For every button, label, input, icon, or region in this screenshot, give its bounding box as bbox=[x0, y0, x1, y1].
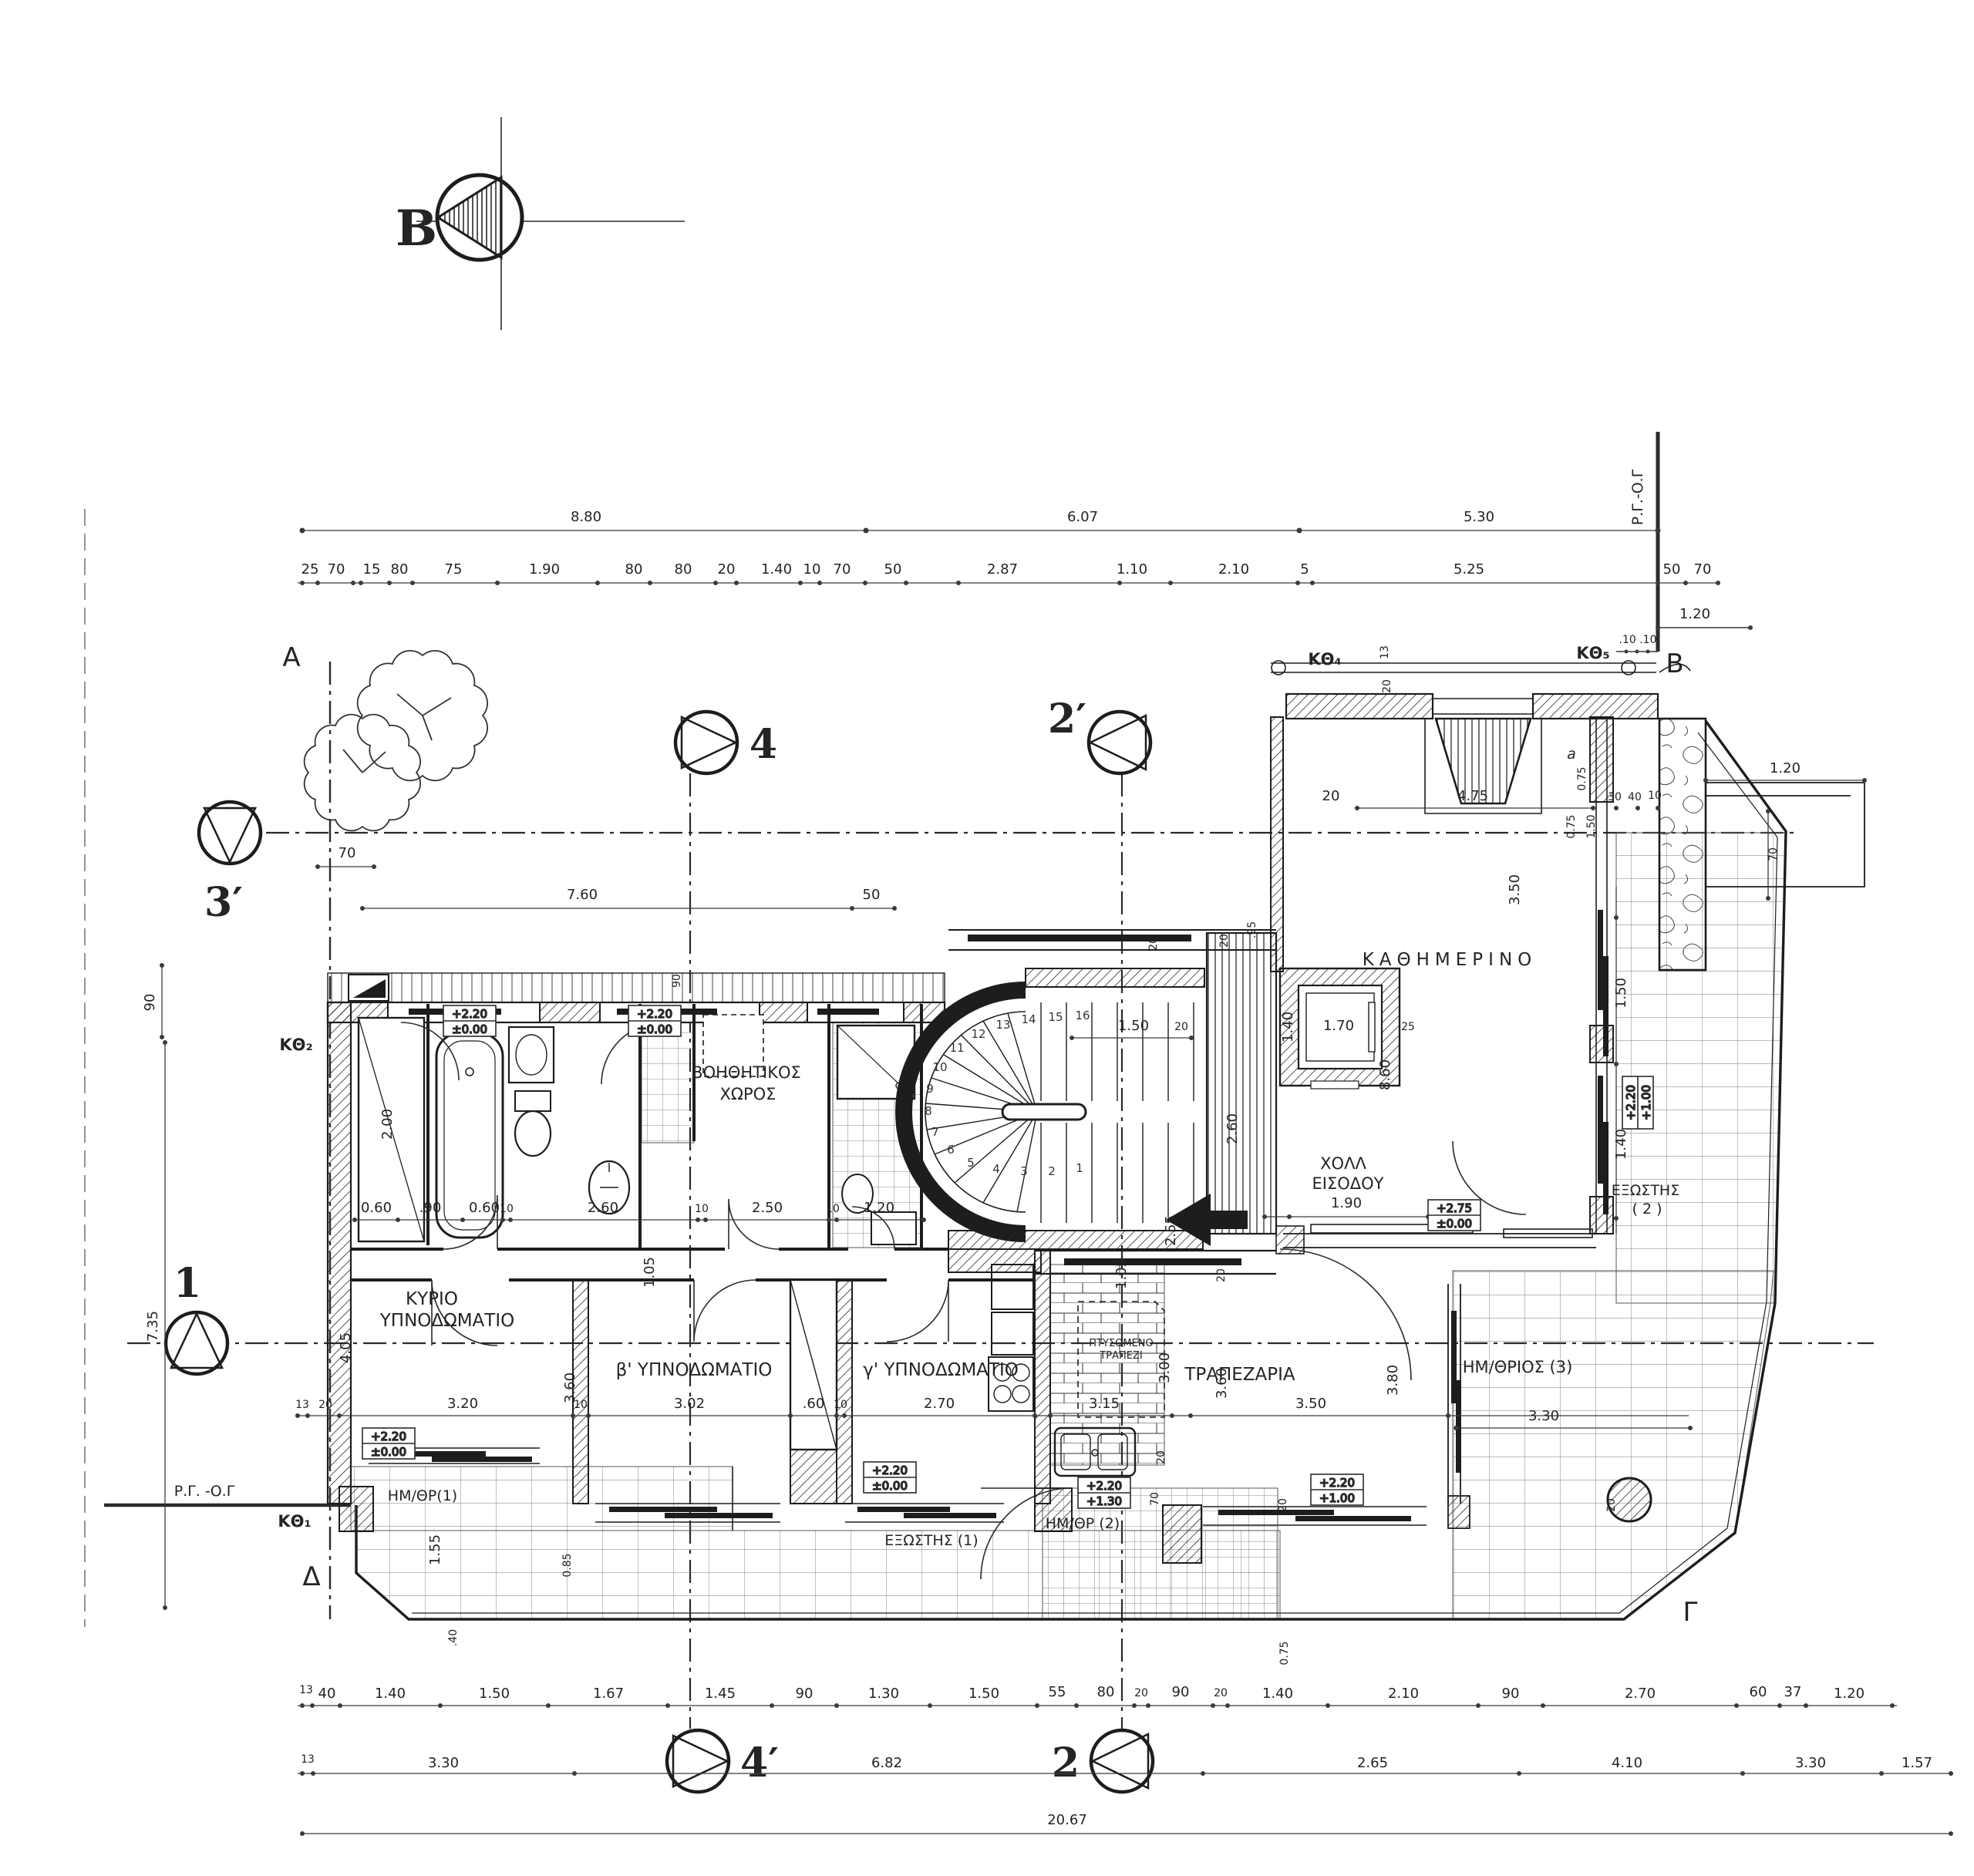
floor-plan-sheet: B 4 2′ 3′ 1 4′ 2 A B Γ Δ bbox=[0, 0, 1974, 1876]
dim-text: 55 bbox=[1049, 1684, 1066, 1700]
dim-text: 37 bbox=[1784, 1684, 1802, 1700]
window-label-kth4: ΚΘ₄ bbox=[1308, 650, 1341, 669]
section-marker-3-prime: 3′ bbox=[199, 802, 261, 926]
step-number: 4 bbox=[992, 1162, 1000, 1176]
room-label-voithitikos-line2: ΧΩΡΟΣ bbox=[720, 1085, 776, 1103]
dim-text: 5.25 bbox=[1454, 561, 1484, 578]
dim-text: 1.05 bbox=[1113, 1258, 1130, 1289]
step-number: 3 bbox=[1020, 1164, 1028, 1178]
dim-text: 1.50 bbox=[1118, 1018, 1149, 1034]
elevation-top: +2.20 bbox=[1319, 1476, 1355, 1490]
dim-text: 6.07 bbox=[1067, 509, 1098, 525]
dim-text: 10 bbox=[826, 1203, 840, 1215]
toilet-tank bbox=[515, 1091, 551, 1111]
stair-lower-flight bbox=[1041, 1123, 1194, 1223]
dim-text: 5 bbox=[1300, 561, 1309, 578]
step-number: 6 bbox=[947, 1143, 955, 1157]
elevation-top: +2.75 bbox=[1437, 1201, 1472, 1215]
room-label-kyrio-line2: ΥΠΝΟΔΩΜΑΤΙΟ bbox=[379, 1311, 514, 1331]
room-label-g-bedroom: γ' ΥΠΝΟΔΩΜΑΤΙΟ bbox=[863, 1360, 1019, 1380]
elevation-bottom: ±0.00 bbox=[371, 1445, 406, 1459]
step-number: 15 bbox=[1048, 1010, 1063, 1024]
dim-text: 1.05 bbox=[642, 1257, 658, 1288]
dim-text: 2.87 bbox=[987, 561, 1018, 578]
dim-text: 1.50 bbox=[1613, 978, 1629, 1009]
dim-text: .40 bbox=[447, 1629, 460, 1646]
step-number: 11 bbox=[949, 1041, 964, 1055]
note-folding-table-line2: ΤΡΑΠΕΖΙ bbox=[1099, 1350, 1142, 1362]
dim-text: 1.40 bbox=[375, 1686, 406, 1702]
step-number: 7 bbox=[931, 1125, 939, 1139]
dim-text: 1.90 bbox=[529, 561, 560, 578]
living-west-wall bbox=[1271, 717, 1283, 972]
dim-text: 2.70 bbox=[1625, 1686, 1656, 1702]
section-marker-2-prime: 2′ bbox=[1048, 696, 1150, 773]
room-label-b-bedroom: β' ΥΠΝΟΔΩΜΑΤΙΟ bbox=[616, 1360, 773, 1380]
elevation-bottom: ±0.00 bbox=[452, 1022, 487, 1036]
dim-text: 1.90 bbox=[1331, 1195, 1362, 1211]
dim-text: 10 bbox=[1648, 790, 1662, 802]
step-number: 12 bbox=[971, 1027, 985, 1041]
room-label-hall-line2: ΕΙΣΟΔΟΥ bbox=[1312, 1174, 1384, 1193]
elevation-top: +2.20 bbox=[1086, 1479, 1122, 1493]
dim-text: 2.60 bbox=[1224, 1113, 1241, 1144]
stair-newel bbox=[1002, 1104, 1086, 1120]
ref-letter-a: a bbox=[1567, 746, 1576, 763]
dim-text: 20 bbox=[1605, 1498, 1618, 1512]
dim-text: 50 bbox=[863, 887, 881, 903]
dim-text: 80 bbox=[625, 561, 643, 578]
section-label-2-prime: 2′ bbox=[1048, 696, 1086, 743]
dim-text: 1.20 bbox=[1770, 760, 1801, 776]
dim-text: 1.50 bbox=[479, 1686, 510, 1702]
dim-text: 3.20 bbox=[447, 1396, 478, 1412]
dim-text: 20 bbox=[1215, 1268, 1228, 1282]
dim-text: 80 bbox=[675, 561, 692, 578]
dim-text: .10 .10 bbox=[1619, 634, 1657, 646]
elevation-tag: +2.20 ±0.00 bbox=[362, 1428, 415, 1459]
dim-text: 0.85 bbox=[561, 1553, 574, 1577]
dim-text: 10 bbox=[695, 1203, 709, 1215]
dim-text: .90 bbox=[419, 1200, 442, 1216]
dim-text: 90 bbox=[1172, 1684, 1190, 1700]
dim-text: 1.50 bbox=[968, 1686, 999, 1702]
dim-text: 1.45 bbox=[705, 1686, 736, 1702]
section-label-b: B bbox=[396, 200, 437, 258]
dim-text: 1.70 bbox=[1323, 1018, 1354, 1034]
dim-text: 20 bbox=[1277, 1498, 1289, 1512]
dim-text: 8.80 bbox=[571, 509, 601, 525]
room-label-exostis2-line2: ( 2 ) bbox=[1632, 1201, 1662, 1218]
section-marker-2: 2 bbox=[1052, 1730, 1153, 1792]
dim-text: 10 bbox=[500, 1203, 514, 1215]
step-number: 14 bbox=[1021, 1012, 1036, 1026]
kitchen-floor bbox=[1050, 1265, 1164, 1465]
dim-text: 2.65 bbox=[1357, 1755, 1388, 1771]
dim-text: 4.10 bbox=[1612, 1755, 1642, 1771]
dim-text: 1.40 bbox=[761, 561, 792, 578]
dim-text: 0.75 bbox=[1278, 1641, 1291, 1665]
dim-text: 20 bbox=[1134, 1687, 1148, 1699]
dim-text: 0.60 bbox=[361, 1200, 392, 1216]
elevation-bottom: ±0.00 bbox=[872, 1479, 908, 1493]
room-label-voithitikos-line1: ΒΟΗΘΗΤΙΚΟΣ bbox=[692, 1063, 801, 1082]
dim-text: 20 bbox=[1155, 1450, 1167, 1464]
dim-text: 25 bbox=[301, 561, 319, 578]
elevation-top: +2.20 bbox=[1624, 1085, 1638, 1120]
room-label-imithr2: ΗΜ/ΘΡ (2) bbox=[1046, 1515, 1120, 1532]
living-level-step bbox=[1283, 1234, 1596, 1248]
dim-text: 3.50 bbox=[1507, 874, 1523, 905]
elevation-bottom: +1.30 bbox=[1086, 1494, 1122, 1508]
section-marker-4-prime: 4′ bbox=[667, 1730, 779, 1792]
dim-text: 1.30 bbox=[868, 1686, 899, 1702]
dim-text-total: 20.67 bbox=[1047, 1812, 1087, 1828]
dim-text: 4.05 bbox=[338, 1332, 354, 1363]
staircase bbox=[904, 930, 1276, 1272]
dim-text: 13 bbox=[301, 1753, 315, 1766]
dim-text: 25 bbox=[1401, 1021, 1415, 1033]
section-label-4-prime: 4′ bbox=[740, 1740, 779, 1787]
dim-text: 30 bbox=[1608, 791, 1622, 803]
toilet-icon bbox=[515, 1111, 551, 1156]
dim-text: 7.35 bbox=[145, 1311, 161, 1342]
dim-text: 3.60 bbox=[562, 1372, 578, 1403]
dim-text: 8.60 bbox=[1377, 1059, 1393, 1090]
dim-text: 40 bbox=[1628, 791, 1642, 803]
section-label-1: 1 bbox=[173, 1260, 201, 1307]
dim-text: 1.10 bbox=[1117, 561, 1147, 578]
dim-text: 13 bbox=[299, 1684, 313, 1696]
step-number: 2 bbox=[1048, 1164, 1056, 1178]
dim-text: 13 bbox=[295, 1399, 309, 1411]
dim-text: 2.70 bbox=[924, 1396, 955, 1412]
room-label-living: ΚΑΘΗΜΕΡΙΝΟ bbox=[1363, 950, 1538, 970]
section-label-4: 4 bbox=[750, 721, 777, 768]
dim-text: 1.20 bbox=[864, 1200, 894, 1216]
dim-text: 0.60 bbox=[469, 1200, 500, 1216]
dim-text: 3.30 bbox=[1528, 1408, 1559, 1424]
elevator-door bbox=[1311, 1081, 1359, 1089]
step-number: 10 bbox=[932, 1060, 947, 1074]
dim-text: 4.75 bbox=[1457, 788, 1488, 804]
elevation-top: +2.20 bbox=[371, 1430, 406, 1443]
room-label-imithr1: ΗΜ/ΘΡ(1) bbox=[388, 1487, 457, 1504]
dim-text: 70 bbox=[328, 561, 345, 578]
dim-text: 70 bbox=[1767, 847, 1780, 861]
room-label-dining: ΤΡΑΠΕΖΑΡΙΑ bbox=[1184, 1365, 1295, 1385]
dim-text: 90 bbox=[796, 1686, 814, 1702]
elevation-top: +2.20 bbox=[452, 1007, 487, 1021]
kitchen-west-wall bbox=[1035, 1249, 1050, 1504]
dim-text: 20 bbox=[318, 1399, 332, 1411]
dim-text: 10 bbox=[834, 1399, 847, 1411]
dim-text: 2.00 bbox=[379, 1109, 396, 1140]
dim-text: 0.75 bbox=[1565, 814, 1578, 838]
dim-text: 70 bbox=[339, 845, 356, 861]
step-number: 9 bbox=[926, 1082, 934, 1096]
dim-text: 20 bbox=[718, 561, 736, 578]
dim-text: 2.60 bbox=[588, 1200, 618, 1216]
elevation-top: +2.20 bbox=[637, 1007, 672, 1021]
dim-text: 0.75 bbox=[1576, 766, 1588, 790]
dim-text: 2.10 bbox=[1218, 561, 1249, 578]
grid-letter-delta: Δ bbox=[302, 1561, 320, 1592]
elevation-tag: +2.20 ±0.00 bbox=[443, 1005, 496, 1036]
dim-text: 20 bbox=[1322, 788, 1340, 804]
section-marker-1: 1 bbox=[166, 1260, 227, 1374]
elevation-bottom: +1.00 bbox=[1319, 1491, 1355, 1505]
dim-text: 3.50 bbox=[1295, 1396, 1326, 1412]
terrace-band bbox=[328, 973, 945, 1002]
step-number: 5 bbox=[967, 1156, 975, 1170]
boundary-label-rg-left: Ρ.Γ. -Ο.Γ bbox=[174, 1483, 235, 1500]
dim-text: 5.30 bbox=[1464, 509, 1494, 525]
dim-text: 2.10 bbox=[1388, 1686, 1419, 1702]
dim-text: 3.00 bbox=[1157, 1352, 1173, 1383]
dim-text: 70 bbox=[1149, 1492, 1161, 1506]
dim-text: 50 bbox=[1663, 561, 1681, 578]
section-label-2: 2 bbox=[1052, 1740, 1080, 1787]
dim-text: 1.40 bbox=[1262, 1686, 1293, 1702]
dim-text: 3.30 bbox=[1795, 1755, 1826, 1771]
dim-text: 2.55 bbox=[1163, 1215, 1179, 1246]
boundary-label-rg-right: Ρ.Γ.-Ο.Γ bbox=[1629, 469, 1646, 525]
elevation-tag: +2.20 ±0.00 bbox=[628, 1005, 681, 1036]
dim-text: 2.50 bbox=[752, 1200, 783, 1216]
dim-text: 20 bbox=[1147, 937, 1160, 951]
window-label-kth2: ΚΘ₂ bbox=[279, 1036, 312, 1054]
dim-text: 3.15 bbox=[1089, 1396, 1120, 1412]
floor-plan-drawing: B 4 2′ 3′ 1 4′ 2 A B Γ Δ bbox=[0, 0, 1974, 1876]
dim-text: 1.57 bbox=[1902, 1755, 1932, 1771]
room-label-hall-line1: ΧΟΛΛ bbox=[1320, 1154, 1366, 1173]
dim-text: 3.30 bbox=[428, 1755, 459, 1771]
dim-text: 20 bbox=[1218, 934, 1231, 948]
step-number: 1 bbox=[1076, 1161, 1083, 1175]
dim-text: 15 bbox=[363, 561, 381, 578]
dim-text: 80 bbox=[391, 561, 409, 578]
window-label-kth1: ΚΘ₁ bbox=[278, 1512, 311, 1531]
chimney-stone-pillar bbox=[1659, 719, 1706, 970]
dim-text: 20 bbox=[1174, 1021, 1188, 1033]
dim-text: 1.40 bbox=[1280, 1012, 1296, 1042]
west-exterior-wall bbox=[328, 1002, 351, 1504]
imithrios-3-floor bbox=[1453, 1271, 1774, 1619]
step-number: 16 bbox=[1075, 1009, 1090, 1022]
elevation-tag: +2.20 +1.00 bbox=[1311, 1474, 1363, 1505]
dim-text: 60 bbox=[1750, 1684, 1767, 1700]
room-label-exostis1: ΕΞΩΣΤΗΣ (1) bbox=[884, 1532, 978, 1549]
dim-text: 7.60 bbox=[567, 887, 598, 903]
tree-icon bbox=[305, 651, 487, 830]
dim-text: 75 bbox=[445, 561, 463, 578]
room-label-kyrio-line1: ΚΥΡΙΟ bbox=[406, 1289, 458, 1309]
elevation-top: +2.20 bbox=[872, 1463, 908, 1477]
dim-text: 20 bbox=[1381, 679, 1393, 693]
entry-ramp bbox=[1207, 933, 1276, 1234]
dim-text: 90 bbox=[671, 974, 683, 988]
living-north-wall-west bbox=[1286, 694, 1433, 719]
dim-text: 90 bbox=[1502, 1686, 1520, 1702]
dim-text: 1.20 bbox=[1679, 606, 1710, 622]
dim-text: 70 bbox=[834, 561, 851, 578]
entrance-door-arc bbox=[1280, 1249, 1411, 1380]
dim-text: 3.80 bbox=[1385, 1365, 1401, 1396]
section-marker-4: 4 bbox=[675, 712, 777, 773]
dim-text: 1.50 bbox=[1585, 814, 1598, 838]
grid-letter-gamma: Γ bbox=[1683, 1597, 1698, 1628]
room-label-exostis2-line1: ΕΞΩΣΤΗΣ bbox=[1612, 1182, 1679, 1199]
elevation-tag: +2.20 ±0.00 bbox=[864, 1462, 916, 1493]
dim-text: 50 bbox=[884, 561, 902, 578]
step-number: 13 bbox=[995, 1018, 1010, 1032]
dim-text: 80 bbox=[1097, 1684, 1115, 1700]
dim-text: .60 bbox=[803, 1396, 825, 1412]
grid-letter-a: A bbox=[282, 642, 300, 673]
room-label-imithrios3: ΗΜ/ΘΡΙΟΣ (3) bbox=[1463, 1358, 1573, 1376]
dim-text: 1.55 bbox=[427, 1534, 443, 1565]
dim-text: 1.40 bbox=[1613, 1129, 1629, 1160]
note-folding-table-line1: ΠΤΥΣΟΜΕΝΟ bbox=[1089, 1338, 1154, 1349]
section-label-3-prime: 3′ bbox=[204, 879, 243, 926]
step-number: 8 bbox=[925, 1104, 932, 1118]
bedroom-partition-2 bbox=[837, 1280, 852, 1504]
elevation-tag: +2.20 +1.00 bbox=[1622, 1076, 1653, 1129]
section-marker-b: B bbox=[396, 117, 685, 330]
dim-text: 40 bbox=[318, 1686, 336, 1702]
dim-text: 13 bbox=[1379, 645, 1391, 659]
dim-text: 1.20 bbox=[1834, 1686, 1865, 1702]
elevation-bottom: ±0.00 bbox=[637, 1022, 672, 1036]
dim-text: .95 bbox=[1246, 921, 1258, 938]
dim-text: 90 bbox=[142, 994, 158, 1012]
dim-text: 6.82 bbox=[871, 1755, 902, 1771]
dim-text: 70 bbox=[1694, 561, 1712, 578]
elevation-bottom: ±0.00 bbox=[1437, 1217, 1472, 1231]
living-north-wall-east bbox=[1533, 694, 1658, 719]
dim-text: 1.67 bbox=[593, 1686, 624, 1702]
elevation-bottom: +1.00 bbox=[1639, 1085, 1653, 1120]
elevation-tag: +2.75 ±0.00 bbox=[1428, 1200, 1480, 1231]
dim-text: 20 bbox=[1214, 1687, 1228, 1699]
dim-text: 10 bbox=[803, 561, 821, 578]
dim-text: 3.02 bbox=[674, 1396, 705, 1412]
elevation-tag: +2.20 +1.30 bbox=[1078, 1477, 1130, 1508]
window-label-kth5: ΚΘ₅ bbox=[1576, 644, 1609, 662]
